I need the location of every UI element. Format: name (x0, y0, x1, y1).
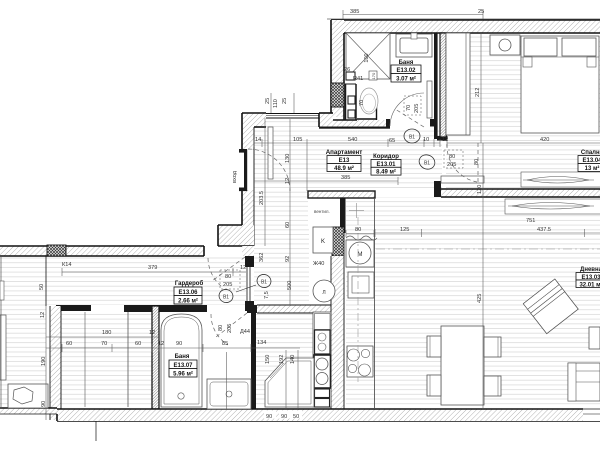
svg-text:134: 134 (257, 340, 266, 346)
svg-text:170: 170 (371, 72, 376, 79)
svg-text:Апартамент: Апартамент (326, 149, 363, 156)
svg-text:8.49 м²: 8.49 м² (376, 169, 396, 176)
svg-text:425: 425 (477, 294, 483, 303)
svg-text:125: 125 (400, 227, 409, 233)
svg-text:48.9 м²: 48.9 м² (334, 165, 354, 172)
svg-text:2.66 м²: 2.66 м² (178, 298, 198, 305)
svg-text:Ж40: Ж40 (313, 261, 324, 267)
svg-text:90: 90 (41, 401, 47, 407)
svg-text:12: 12 (442, 137, 448, 143)
svg-text:25: 25 (265, 98, 271, 104)
svg-text:80: 80 (218, 325, 224, 331)
svg-text:50: 50 (39, 284, 45, 290)
svg-text:80: 80 (225, 274, 231, 280)
svg-text:212: 212 (475, 88, 481, 97)
svg-text:379: 379 (148, 265, 157, 271)
svg-text:В1: В1 (223, 295, 229, 301)
svg-text:100: 100 (364, 53, 370, 62)
svg-text:Л: Л (322, 290, 325, 296)
svg-text:420: 420 (540, 137, 549, 143)
svg-text:500: 500 (287, 281, 293, 290)
svg-text:192: 192 (279, 355, 285, 364)
svg-text:205: 205 (223, 282, 232, 288)
svg-text:80: 80 (355, 227, 361, 233)
svg-text:205: 205 (414, 104, 420, 113)
svg-text:12: 12 (158, 341, 164, 347)
svg-text:13 м²: 13 м² (585, 165, 600, 172)
svg-text:65: 65 (389, 138, 395, 144)
svg-text:14: 14 (255, 137, 261, 143)
svg-text:В1: В1 (261, 280, 267, 286)
svg-text:Е13.02: Е13.02 (396, 68, 416, 74)
svg-text:12: 12 (240, 265, 246, 271)
svg-text:вентил.: вентил. (314, 209, 330, 214)
svg-text:В1: В1 (409, 135, 415, 141)
svg-text:140: 140 (290, 355, 296, 364)
svg-text:Баня: Баня (175, 354, 190, 360)
svg-text:70: 70 (101, 341, 107, 347)
svg-text:80: 80 (449, 154, 455, 160)
svg-text:190: 190 (41, 357, 47, 366)
svg-text:203.5: 203.5 (259, 191, 265, 205)
svg-text:110: 110 (273, 99, 279, 108)
svg-text:540: 540 (348, 137, 357, 143)
svg-text:К14: К14 (62, 262, 71, 268)
svg-text:362: 362 (259, 253, 265, 262)
svg-text:10: 10 (423, 137, 429, 143)
svg-text:180: 180 (102, 330, 111, 336)
svg-text:В1: В1 (424, 161, 430, 167)
svg-text:92: 92 (285, 256, 291, 262)
svg-text:вход: вход (232, 170, 238, 183)
svg-text:70: 70 (359, 100, 365, 106)
svg-text:80: 80 (474, 159, 480, 165)
svg-text:90: 90 (281, 414, 287, 420)
svg-text:25: 25 (282, 98, 288, 104)
svg-text:70: 70 (406, 105, 412, 111)
svg-text:205: 205 (227, 324, 233, 333)
svg-text:Д44: Д44 (240, 329, 250, 335)
svg-text:105: 105 (293, 137, 302, 143)
svg-text:7,5: 7,5 (264, 291, 270, 299)
svg-text:120: 120 (477, 185, 483, 194)
svg-text:85: 85 (222, 341, 228, 347)
svg-text:130: 130 (285, 154, 291, 163)
svg-text:12: 12 (149, 330, 155, 336)
svg-text:12: 12 (40, 312, 46, 318)
svg-text:385: 385 (350, 9, 359, 15)
svg-text:437.5: 437.5 (537, 227, 551, 233)
svg-text:90: 90 (266, 414, 272, 420)
svg-text:751: 751 (526, 218, 535, 224)
svg-text:50: 50 (293, 414, 299, 420)
svg-text:R41: R41 (353, 76, 363, 82)
svg-text:3.07 м²: 3.07 м² (396, 76, 416, 83)
svg-text:26: 26 (344, 67, 350, 73)
svg-text:205: 205 (447, 162, 456, 168)
svg-text:60: 60 (66, 341, 72, 347)
svg-text:5.96 м²: 5.96 м² (173, 371, 193, 378)
svg-text:25: 25 (478, 9, 484, 15)
svg-text:90: 90 (176, 341, 182, 347)
svg-text:150: 150 (265, 355, 271, 364)
svg-text:K: K (321, 239, 325, 245)
svg-text:60: 60 (135, 341, 141, 347)
svg-text:385: 385 (341, 175, 350, 181)
svg-text:60: 60 (285, 222, 291, 228)
svg-text:Гардероб: Гардероб (175, 280, 204, 287)
svg-text:32.01 м²: 32.01 м² (579, 282, 600, 289)
